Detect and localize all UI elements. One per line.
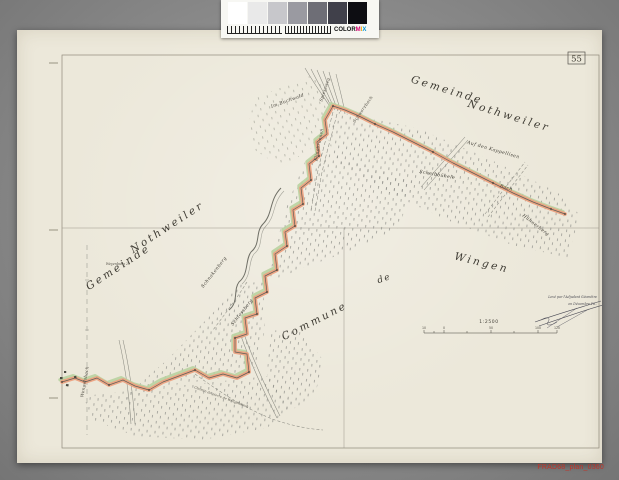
scale-ratio: 1:2500 — [479, 319, 498, 325]
gray-patch-7 — [348, 2, 367, 24]
label-commune: Commune — [280, 300, 350, 343]
color-calibration-card: COLORMIX — [221, 0, 379, 38]
surveyor-note-line2: en Décembre 18.. — [568, 302, 597, 306]
scale-tick-120: 120 — [554, 326, 560, 330]
archive-reference: FRAD68_plan_0360 — [537, 464, 604, 471]
colormix-logo: COLORMIX — [334, 27, 372, 33]
gray-patch-5 — [308, 2, 327, 24]
gray-patch-6 — [328, 2, 347, 24]
map-drawing: 55 — [17, 30, 602, 463]
label-nothweiler-right: Nothweiler — [465, 98, 551, 135]
grayscale-patches — [221, 0, 379, 24]
gray-patch-2 — [248, 2, 267, 24]
scale-tick-10: 10 — [422, 326, 426, 330]
scanned-map-sheet: 55 — [0, 0, 619, 480]
label-weyenburg: Weyenburg 29 — [106, 262, 130, 266]
map-paper: 55 — [17, 30, 602, 463]
sheet-number: 55 — [571, 55, 582, 65]
margin-marks — [49, 63, 58, 398]
label-wingen: Wingen — [453, 250, 510, 275]
calibration-ruler-cm — [227, 26, 282, 34]
calibration-ruler-mm — [285, 26, 331, 34]
scale-tick-100: 100 — [535, 326, 541, 330]
surveyor-note: Levé par l'Adjudant Géomètre en Décembre… — [535, 295, 602, 328]
gray-patch-3 — [268, 2, 287, 24]
surveyor-note-line1: Levé par l'Adjudant Géomètre — [547, 295, 597, 299]
scale-tick-50: 50 — [489, 326, 493, 330]
scale-tick-0: 0 — [443, 326, 445, 330]
gray-patch-1 — [228, 2, 247, 24]
sheet-number-box: 55 — [568, 52, 585, 65]
gray-patch-4 — [288, 2, 307, 24]
label-schnakenberg: Schnakenberg — [200, 255, 228, 289]
label-de: de — [376, 272, 393, 286]
